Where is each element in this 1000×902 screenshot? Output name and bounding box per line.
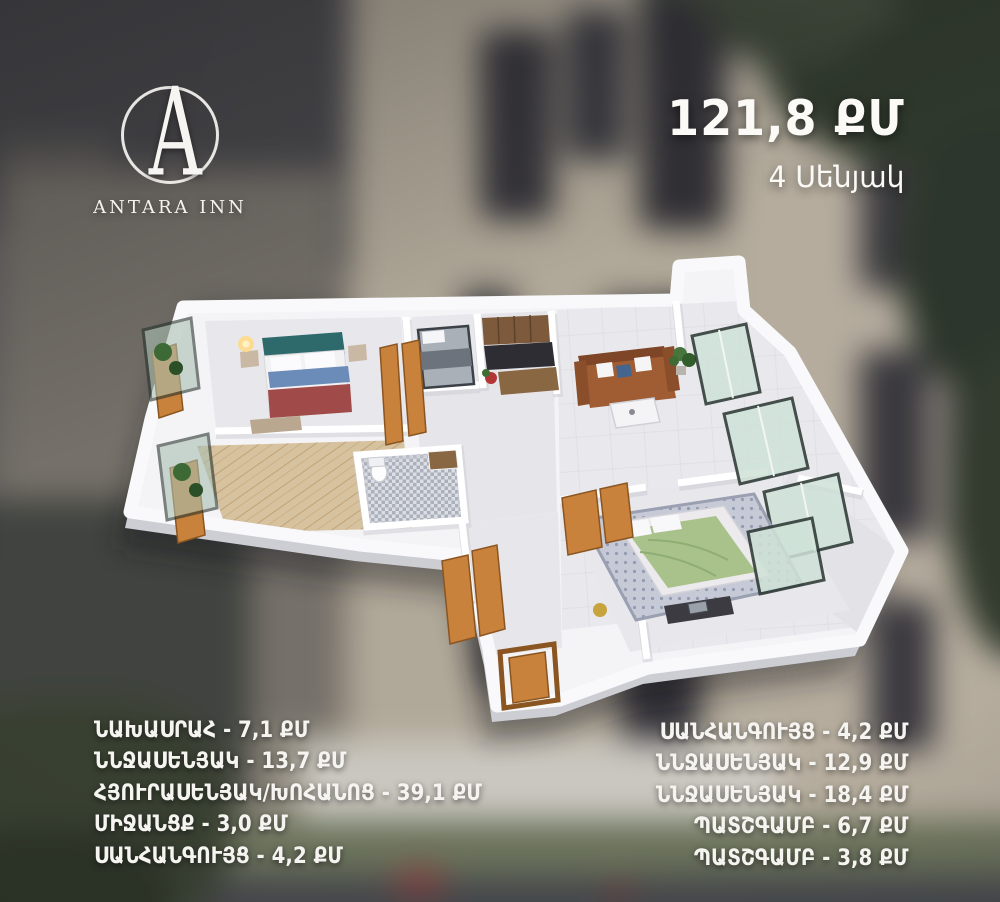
logo-monogram: A: [149, 72, 202, 194]
room-item: ՄԻՋԱՆՑՔ - 3,0 ՔՄ: [94, 809, 482, 840]
floor-plan: [116, 262, 902, 742]
rooms-count: 4 Սենյակ: [659, 160, 904, 194]
poster: A ANTARA INN 121,8 ՔՄ 4 Սենյակ ՆԱԽԱՍՐԱՀ …: [0, 0, 1000, 902]
sofa: [574, 346, 680, 408]
room-item: ՆԱԽԱՍՐԱՀ - 7,1 ՔՄ: [94, 715, 482, 746]
bedroom3-bed: [418, 326, 474, 388]
room-item: ՍԱՆՀԱՆԳՈՒՅՑ - 4,2 ՔՄ: [94, 841, 482, 872]
room-item: ՆՆՋԱՍԵՆՅԱԿ - 13,7 ՔՄ: [94, 746, 482, 777]
coffee-table: [610, 398, 660, 428]
offer-headline: 121,8 ՔՄ 4 Սենյակ: [652, 90, 904, 194]
brand-logo: A ANTARA INN: [85, 86, 255, 218]
room-item: ՆՆՋԱՍԵՆՅԱԿ - 18,4 ՔՄ: [656, 780, 908, 811]
room-list-right: ՍԱՆՀԱՆԳՈՒՅՑ - 4,2 ՔՄ ՆՆՋԱՍԵՆՅԱԿ - 12,9 Ք…: [656, 717, 908, 874]
room-item: ՊԱՏՇԳԱՄԲ - 6,7 ՔՄ: [656, 811, 908, 842]
room-item: ՊԱՏՇԳԱՄԲ - 3,8 ՔՄ: [656, 843, 908, 874]
room-item: ՍԱՆՀԱՆԳՈՒՅՑ - 4,2 ՔՄ: [656, 717, 908, 748]
kitchen: [482, 315, 559, 395]
room-list-left: ՆԱԽԱՍՐԱՀ - 7,1 ՔՄ ՆՆՋԱՍԵՆՅԱԿ - 13,7 ՔՄ Հ…: [94, 715, 482, 872]
total-area: 121,8 ՔՄ: [667, 90, 904, 147]
logo-circle-icon: A: [121, 86, 219, 184]
room-item: ՆՆՋԱՍԵՆՅԱԿ - 12,9 ՔՄ: [656, 748, 908, 779]
room-item: ՀՅՈՒՐԱՍԵՆՅԱԿ/ԽՈՀԱՆՈՑ - 39,1 ՔՄ: [94, 778, 482, 809]
